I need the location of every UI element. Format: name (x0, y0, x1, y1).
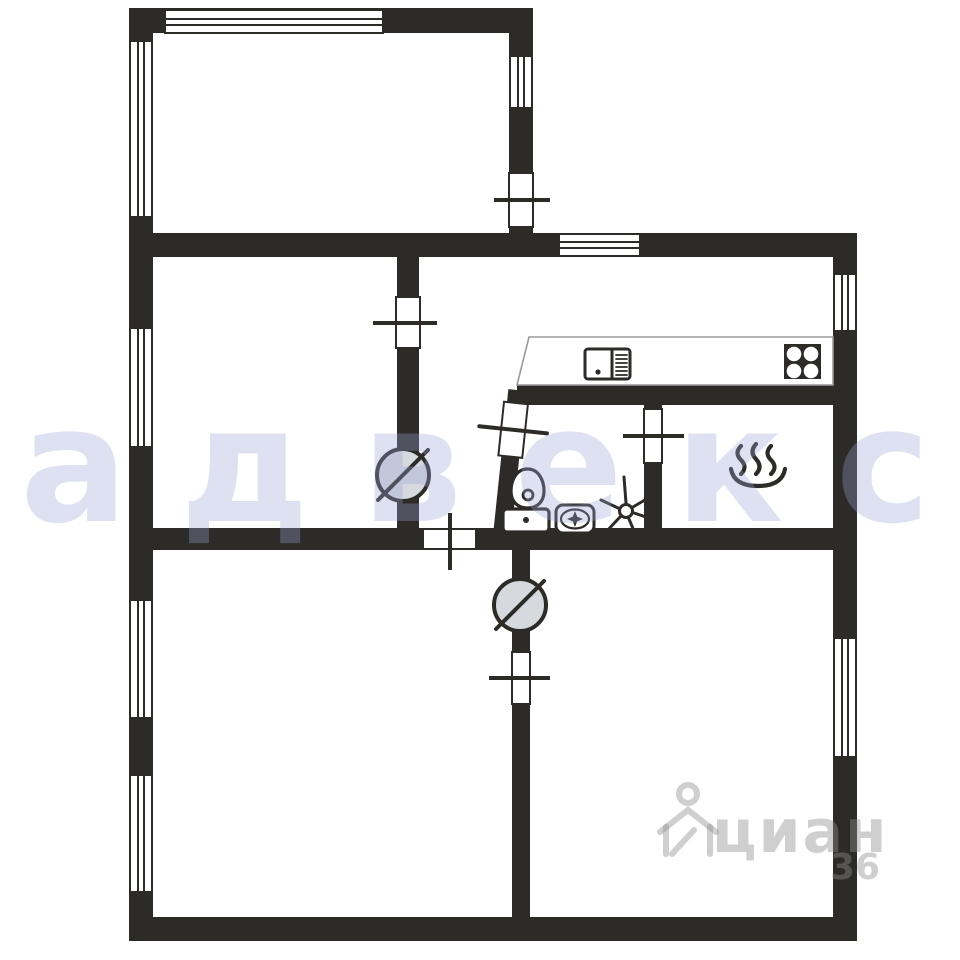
floor-plan: адвекс циан 36 (0, 0, 960, 960)
watermark-portal-number: 36 (830, 850, 880, 886)
